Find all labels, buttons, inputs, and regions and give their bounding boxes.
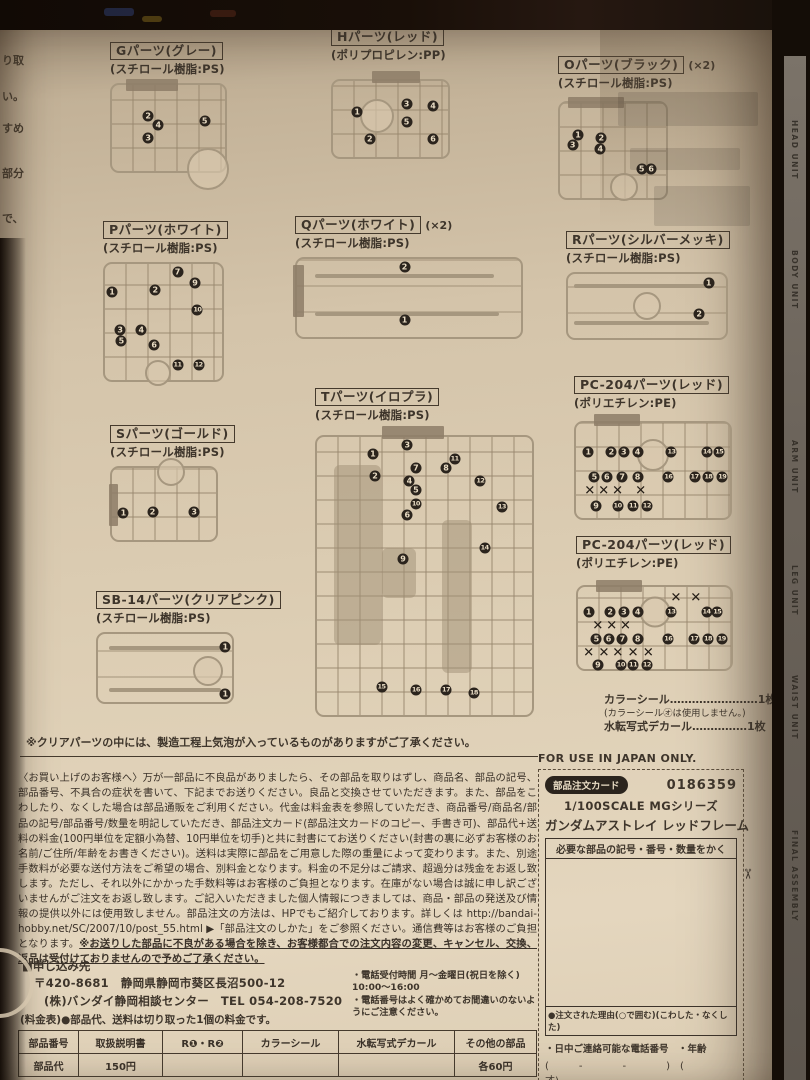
part-number-badge: 12 bbox=[641, 659, 652, 670]
part-number-badge: 1 bbox=[107, 286, 118, 297]
part-number-badge: 9 bbox=[398, 554, 409, 565]
part-number-badge: 4 bbox=[153, 120, 164, 131]
part-number-badge: 2 bbox=[605, 607, 616, 618]
sprue-gate-tab bbox=[126, 79, 178, 91]
sprue-material: (ポリプロピレン:PP) bbox=[331, 47, 531, 63]
part-number-badge: 11 bbox=[628, 659, 639, 670]
part-number-badge: 3 bbox=[402, 440, 413, 451]
edge-text-fragment: で、 bbox=[2, 210, 24, 226]
phone-caution: ・電話番号はよく確かめてお間違いのないようにご注意ください。 bbox=[352, 995, 538, 1020]
cell: 150円 bbox=[79, 1054, 163, 1077]
part-number-badge: 15 bbox=[712, 607, 723, 618]
part-number-badge: 10 bbox=[612, 500, 623, 511]
runner-circle bbox=[187, 148, 229, 190]
phone-number: TEL 054-208-7520 bbox=[221, 994, 342, 1008]
part-number-badge: 7 bbox=[617, 634, 628, 645]
unused-part-x-mark: ✕ bbox=[606, 620, 617, 633]
sprue-material: (スチロール樹脂:PS) bbox=[295, 235, 535, 251]
order-card-cutout: 部品注文カード 0186359 1/100SCALE MGシリーズ ガンダムアス… bbox=[538, 769, 744, 1080]
decal-line: 水転写式デカール……………1枚 bbox=[604, 720, 792, 734]
part-number-badge: 4 bbox=[632, 607, 643, 618]
unused-part-x-mark: ✕ bbox=[690, 592, 701, 605]
edge-text-fragment: い。 bbox=[2, 88, 24, 104]
part-number-badge: 6 bbox=[402, 509, 413, 520]
part-number-badge: 13 bbox=[666, 446, 677, 457]
part-number-badge: 12 bbox=[641, 500, 652, 511]
sprue-material: (ポリエチレン:PE) bbox=[574, 395, 784, 411]
unused-part-x-mark: ✕ bbox=[583, 646, 594, 659]
part-number-badge: 14 bbox=[701, 446, 712, 457]
blade-part bbox=[574, 321, 708, 325]
col-header: R❶・R❷ bbox=[163, 1031, 243, 1054]
part-number-badge: 4 bbox=[595, 143, 606, 154]
sprue-diagram-q: 21 bbox=[295, 257, 523, 339]
sprue-material: (スチロール樹脂:PS) bbox=[96, 610, 316, 626]
sprue-gate-tab bbox=[594, 414, 640, 426]
part-number-badge: 11 bbox=[627, 500, 638, 511]
sprue-block-s: Sパーツ(ゴールド) (スチロール樹脂:PS) 123 bbox=[110, 423, 310, 542]
company-line: (株)バンダイ静岡相談センター TEL 054-208-7520 bbox=[44, 993, 342, 1009]
part-number-badge: 10 bbox=[410, 498, 421, 509]
part-number-badge: 1 bbox=[220, 688, 231, 699]
part-number-badge: 2 bbox=[370, 470, 381, 481]
sprue-block-p: Pパーツ(ホワイト) (スチロール樹脂:PS) 12791034561112 bbox=[103, 219, 303, 382]
sprue-material: (スチロール樹脂:PS) bbox=[103, 240, 303, 256]
part-number-badge: 9 bbox=[190, 277, 201, 288]
col-header: 取扱説明書 bbox=[79, 1031, 163, 1054]
sprue-block-r: Rパーツ(シルバーメッキ) (スチロール樹脂:PS) 12 bbox=[566, 229, 776, 340]
part-number-badge: 15 bbox=[714, 446, 725, 457]
blade-part bbox=[574, 284, 708, 288]
part-number-badge: 7 bbox=[172, 267, 183, 278]
part-number-badge: 15 bbox=[376, 682, 387, 693]
part-number-badge: 9 bbox=[592, 659, 603, 670]
serial-number: 0186359 bbox=[667, 778, 737, 793]
cell bbox=[243, 1054, 339, 1077]
part-number-badge: 1 bbox=[399, 314, 410, 325]
part-number-badge: 2 bbox=[147, 506, 158, 517]
unused-part-x-mark: ✕ bbox=[612, 485, 623, 498]
col-header: 部品番号 bbox=[19, 1031, 79, 1054]
sprue-material: (スチロール樹脂:PS) bbox=[110, 444, 310, 460]
unused-part-x-mark: ✕ bbox=[599, 646, 610, 659]
part-number-badge: 6 bbox=[601, 472, 612, 483]
price-table-title: (料金表) bbox=[20, 1014, 61, 1026]
col-header: カラーシール bbox=[243, 1031, 339, 1054]
address-line: 〒420-8681 静岡県静岡市葵区長沼500-12 bbox=[34, 975, 285, 991]
part-number-badge: 3 bbox=[618, 446, 629, 457]
edge-text-fragment: り取 bbox=[2, 52, 24, 68]
unused-part-x-mark: ✕ bbox=[598, 485, 609, 498]
part-silhouette bbox=[334, 465, 381, 646]
cell bbox=[339, 1054, 455, 1077]
edge-text-fragment: 部分 bbox=[2, 165, 24, 181]
cell: 部品代 bbox=[19, 1054, 79, 1077]
sprue-label: Tパーツ(イロプラ) bbox=[315, 388, 439, 406]
phone-notes: ・電話受付時間 月〜金曜日(祝日を除く) 10:00〜16:00 ・電話番号はよ… bbox=[352, 970, 538, 1020]
color-seal-note: (カラーシール㋔は使用しません。) bbox=[604, 707, 792, 721]
for-japan-only-label: FOR USE IN JAPAN ONLY. bbox=[538, 752, 744, 765]
part-number-badge: 5 bbox=[591, 634, 602, 645]
part-number-badge: 1 bbox=[220, 641, 231, 652]
part-number-badge: 13 bbox=[666, 607, 677, 618]
unused-part-x-mark: ✕ bbox=[643, 646, 654, 659]
parts-entry-heading: 必要な部品の記号・番号・数量をかく bbox=[546, 839, 736, 859]
part-number-badge: 6 bbox=[149, 340, 160, 351]
part-number-badge: 10 bbox=[192, 305, 203, 316]
sprue-label: Sパーツ(ゴールド) bbox=[110, 425, 235, 443]
edge-section-label: LEG UNIT bbox=[790, 565, 799, 616]
order-card-pill: 部品注文カード bbox=[545, 776, 628, 794]
sprue-label: Qパーツ(ホワイト) bbox=[295, 216, 421, 234]
company-name: (株)バンダイ静岡相談センター bbox=[44, 994, 209, 1008]
col-header: その他の部品 bbox=[455, 1031, 537, 1054]
cell bbox=[163, 1054, 243, 1077]
order-instructions-paragraph: 〈お買い上げのお客様へ〉万が一部品に不良品がありましたら、その部品を取りはずし、… bbox=[18, 771, 537, 967]
part-number-badge: 2 bbox=[143, 110, 154, 121]
part-number-badge: 2 bbox=[606, 446, 617, 457]
clear-parts-note: ※クリアパーツの中には、製造工程上気泡が入っているものがありますがご了承ください… bbox=[26, 734, 540, 750]
contact-phone-age-label: ・日中ご連絡可能な電話番号 ・年齢 bbox=[545, 1041, 737, 1055]
accessories-list: カラーシール……………………1枚 (カラーシール㋔は使用しません。) 水転写式デ… bbox=[604, 693, 792, 734]
part-number-badge: 17 bbox=[689, 634, 700, 645]
sprue-gate-tab bbox=[109, 484, 118, 526]
unused-part-x-mark: ✕ bbox=[584, 485, 595, 498]
col-header: 水転写式デカール bbox=[339, 1031, 455, 1054]
runner-circle bbox=[360, 99, 394, 133]
edge-section-label: ARM UNIT bbox=[790, 440, 799, 494]
part-number-badge: 1 bbox=[703, 277, 714, 288]
part-number-badge: 2 bbox=[364, 133, 375, 144]
sprue-diagram-s: 123 bbox=[110, 466, 218, 542]
edge-text-fragment: すめ bbox=[2, 120, 24, 136]
part-number-badge: 5 bbox=[589, 472, 600, 483]
sprue-label: Hパーツ(レッド) bbox=[331, 28, 444, 46]
part-number-badge: 8 bbox=[632, 634, 643, 645]
part-number-badge: 19 bbox=[716, 634, 727, 645]
part-number-badge: 10 bbox=[615, 659, 626, 670]
blade-part bbox=[109, 646, 222, 650]
part-silhouette bbox=[442, 520, 472, 673]
part-number-badge: 7 bbox=[410, 462, 421, 473]
sprue-gate-tab bbox=[596, 580, 642, 592]
part-number-badge: 4 bbox=[428, 101, 439, 112]
manual-page-photo: Gパーツ(グレー) (スチロール樹脂:PS) 2435 Hパーツ(レッド) (ポ… bbox=[0, 0, 810, 1080]
part-number-badge: 18 bbox=[703, 634, 714, 645]
sprue-diagram-pc204-1: 12341314155678161718199101112✕✕✕✕ bbox=[574, 421, 732, 520]
price-table: 部品番号 取扱説明書 R❶・R❷ カラーシール 水転写式デカール その他の部品 … bbox=[18, 1030, 537, 1077]
sprue-label: Pパーツ(ホワイト) bbox=[103, 221, 228, 239]
sprue-block-t: Tパーツ(イロプラ) (スチロール樹脂:PS) 1237811451210613… bbox=[315, 386, 545, 717]
part-number-badge: 7 bbox=[617, 472, 628, 483]
adjacent-page-edge: HEAD UNITBODY UNITARM UNITLEG UNITWAIST … bbox=[784, 56, 806, 1080]
sprue-block-q: Qパーツ(ホワイト)(×2) (スチロール樹脂:PS) 21 bbox=[295, 214, 535, 339]
order-reason-line: ●注文された理由(○で囲む)(こわした・なくした) bbox=[546, 1006, 736, 1035]
parts-entry-box: 必要な部品の記号・番号・数量をかく ●注文された理由(○で囲む)(こわした・なく… bbox=[545, 838, 737, 1036]
sprue-label: Gパーツ(グレー) bbox=[110, 42, 223, 60]
edge-section-label: HEAD UNIT bbox=[790, 120, 799, 180]
part-number-badge: 2 bbox=[596, 133, 607, 144]
sprue-gate-tab bbox=[382, 426, 444, 439]
sprue-diagram-p: 12791034561112 bbox=[103, 262, 224, 382]
runner-circle bbox=[633, 292, 661, 320]
color-seal-line: カラーシール……………………1枚 bbox=[604, 693, 792, 707]
series-label: 1/100SCALE MGシリーズ bbox=[545, 798, 737, 814]
runner-circle bbox=[637, 439, 669, 471]
runner-circle bbox=[193, 656, 223, 686]
edge-section-label: FINAL ASSEMBLY bbox=[790, 830, 799, 922]
part-number-badge: 9 bbox=[591, 500, 602, 511]
order-card-header: 部品注文カード 0186359 bbox=[545, 776, 737, 794]
part-number-badge: 6 bbox=[646, 163, 657, 174]
blade-part bbox=[109, 688, 222, 692]
sprue-block-pc204-2: PC-204パーツ(レッド) (ポリエチレン:PE) 1234131415567… bbox=[576, 534, 786, 671]
sprue-diagram-sb14: 11 bbox=[96, 632, 234, 704]
sprue-block-sb14: SB-14パーツ(クリアピンク) (スチロール樹脂:PS) 11 bbox=[96, 589, 316, 704]
part-number-badge: 1 bbox=[583, 607, 594, 618]
manual-page: Gパーツ(グレー) (スチロール樹脂:PS) 2435 Hパーツ(レッド) (ポ… bbox=[0, 0, 774, 1080]
part-number-badge: 14 bbox=[479, 543, 490, 554]
sprue-label: SB-14パーツ(クリアピンク) bbox=[96, 591, 281, 609]
sprue-diagram-h: 123456 bbox=[331, 79, 450, 159]
phone-hours: ・電話受付時間 月〜金曜日(祝日を除く) 10:00〜16:00 bbox=[352, 970, 538, 995]
part-number-badge: 1 bbox=[352, 107, 363, 118]
part-number-badge: 5 bbox=[410, 484, 421, 495]
part-number-badge: 16 bbox=[663, 634, 674, 645]
part-number-badge: 16 bbox=[663, 472, 674, 483]
edge-section-label: BODY UNIT bbox=[790, 250, 799, 310]
part-number-badge: 1 bbox=[118, 507, 129, 518]
part-number-badge: 8 bbox=[441, 462, 452, 473]
sprue-material: (スチロール樹脂:PS) bbox=[566, 250, 776, 266]
part-number-badge: 17 bbox=[689, 472, 700, 483]
product-name: ガンダムアストレイ レッドフレーム bbox=[545, 815, 737, 834]
sprue-block-g: Gパーツ(グレー) (スチロール樹脂:PS) 2435 bbox=[110, 40, 310, 173]
sprue-label: PC-204パーツ(レッド) bbox=[574, 376, 729, 394]
sprue-diagram-g: 2435 bbox=[110, 83, 227, 173]
scissors-icon: ✂ bbox=[739, 868, 755, 880]
part-number-badge: 4 bbox=[136, 325, 147, 336]
part-number-badge: 18 bbox=[468, 687, 479, 698]
sprue-material: (スチロール樹脂:PS) bbox=[110, 61, 310, 77]
sprue-block-h: Hパーツ(レッド) (ポリプロピレン:PP) 123456 bbox=[331, 26, 531, 159]
part-number-badge: 17 bbox=[441, 684, 452, 695]
part-number-badge: 6 bbox=[603, 634, 614, 645]
order-paragraph-text: 〈お買い上げのお客様へ〉万が一部品に不良品がありましたら、その部品を取りはずし、… bbox=[18, 772, 537, 950]
contact-phone-age-blanks: ( - - ) ( 才) bbox=[545, 1057, 737, 1080]
part-number-badge: 2 bbox=[399, 261, 410, 272]
sprue-label: PC-204パーツ(レッド) bbox=[576, 536, 731, 554]
unused-part-x-mark: ✕ bbox=[612, 646, 623, 659]
sprue-material: (ポリエチレン:PE) bbox=[576, 555, 786, 571]
part-number-badge: 14 bbox=[701, 607, 712, 618]
price-table-label: (料金表)●部品代、送料は切り取った1個の料金です。 bbox=[20, 1012, 276, 1027]
price-table-row: 部品代 150円 各60円 bbox=[19, 1054, 537, 1077]
part-number-badge: 1 bbox=[367, 448, 378, 459]
unused-part-x-mark: ✕ bbox=[670, 592, 681, 605]
sprue-multiplier: (×2) bbox=[425, 219, 452, 232]
part-number-badge: 3 bbox=[115, 325, 126, 336]
part-number-badge: 3 bbox=[618, 607, 629, 618]
part-number-badge: 8 bbox=[632, 472, 643, 483]
postal-code: 〒420-8681 bbox=[34, 976, 109, 990]
part-number-badge: 4 bbox=[632, 446, 643, 457]
part-number-badge: 16 bbox=[410, 684, 421, 695]
sprue-gate-tab bbox=[293, 265, 304, 317]
part-number-badge: 5 bbox=[116, 335, 127, 346]
part-number-badge: 3 bbox=[567, 139, 578, 150]
part-number-badge: 6 bbox=[428, 133, 439, 144]
unused-part-x-mark: ✕ bbox=[635, 485, 646, 498]
sprue-material: (スチロール樹脂:PS) bbox=[315, 407, 545, 423]
runner-circle bbox=[157, 458, 185, 486]
divider-rule bbox=[20, 756, 538, 757]
price-table-note: ●部品代、送料は切り取った1個の料金です。 bbox=[61, 1014, 276, 1026]
part-number-badge: 11 bbox=[449, 454, 460, 465]
sprue-diagram-t: 123781145121061314915161718 bbox=[315, 435, 534, 717]
part-number-badge: 3 bbox=[189, 506, 200, 517]
sprue-diagram-r: 12 bbox=[566, 272, 728, 340]
part-number-badge: 2 bbox=[694, 309, 705, 320]
sprue-gate-tab bbox=[372, 71, 420, 83]
sprue-block-pc204-1: PC-204パーツ(レッド) (ポリエチレン:PE) 1234131415567… bbox=[574, 374, 784, 520]
part-number-badge: 12 bbox=[475, 476, 486, 487]
print-show-through bbox=[600, 30, 774, 235]
part-number-badge: 3 bbox=[401, 98, 412, 109]
part-number-badge: 18 bbox=[703, 472, 714, 483]
part-number-badge: 11 bbox=[172, 359, 183, 370]
order-warning-text: ※お送りした部品に不良がある場合を除き、お客様都合での注文内容の変更、キャンセル… bbox=[18, 938, 537, 965]
part-number-badge: 5 bbox=[199, 116, 210, 127]
edge-section-label: WAIST UNIT bbox=[790, 675, 799, 740]
part-number-badge: 2 bbox=[150, 284, 161, 295]
part-number-badge: 13 bbox=[496, 501, 507, 512]
photo-top-edge bbox=[0, 0, 810, 30]
part-number-badge: 3 bbox=[143, 133, 154, 144]
unused-part-x-mark: ✕ bbox=[628, 646, 639, 659]
part-number-badge: 5 bbox=[401, 117, 412, 128]
sprue-diagram-pc204-2: 12341314155678161718199101112✕✕✕✕✕✕✕✕✕✕ bbox=[576, 585, 733, 671]
unused-part-x-mark: ✕ bbox=[592, 620, 603, 633]
part-number-badge: 19 bbox=[717, 472, 728, 483]
part-number-badge: 1 bbox=[583, 446, 594, 457]
blade-part bbox=[315, 274, 494, 278]
street-address: 静岡県静岡市葵区長沼500-12 bbox=[121, 976, 286, 990]
photo-right-edge: HEAD UNITBODY UNITARM UNITLEG UNITWAIST … bbox=[772, 0, 810, 1080]
unused-part-x-mark: ✕ bbox=[620, 620, 631, 633]
cell: 各60円 bbox=[455, 1054, 537, 1077]
price-table-header-row: 部品番号 取扱説明書 R❶・R❷ カラーシール 水転写式デカール その他の部品 bbox=[19, 1031, 537, 1054]
part-number-badge: 12 bbox=[193, 359, 204, 370]
parts-order-card: FOR USE IN JAPAN ONLY. 部品注文カード 0186359 1… bbox=[538, 752, 744, 1080]
runner-circle bbox=[145, 360, 171, 386]
